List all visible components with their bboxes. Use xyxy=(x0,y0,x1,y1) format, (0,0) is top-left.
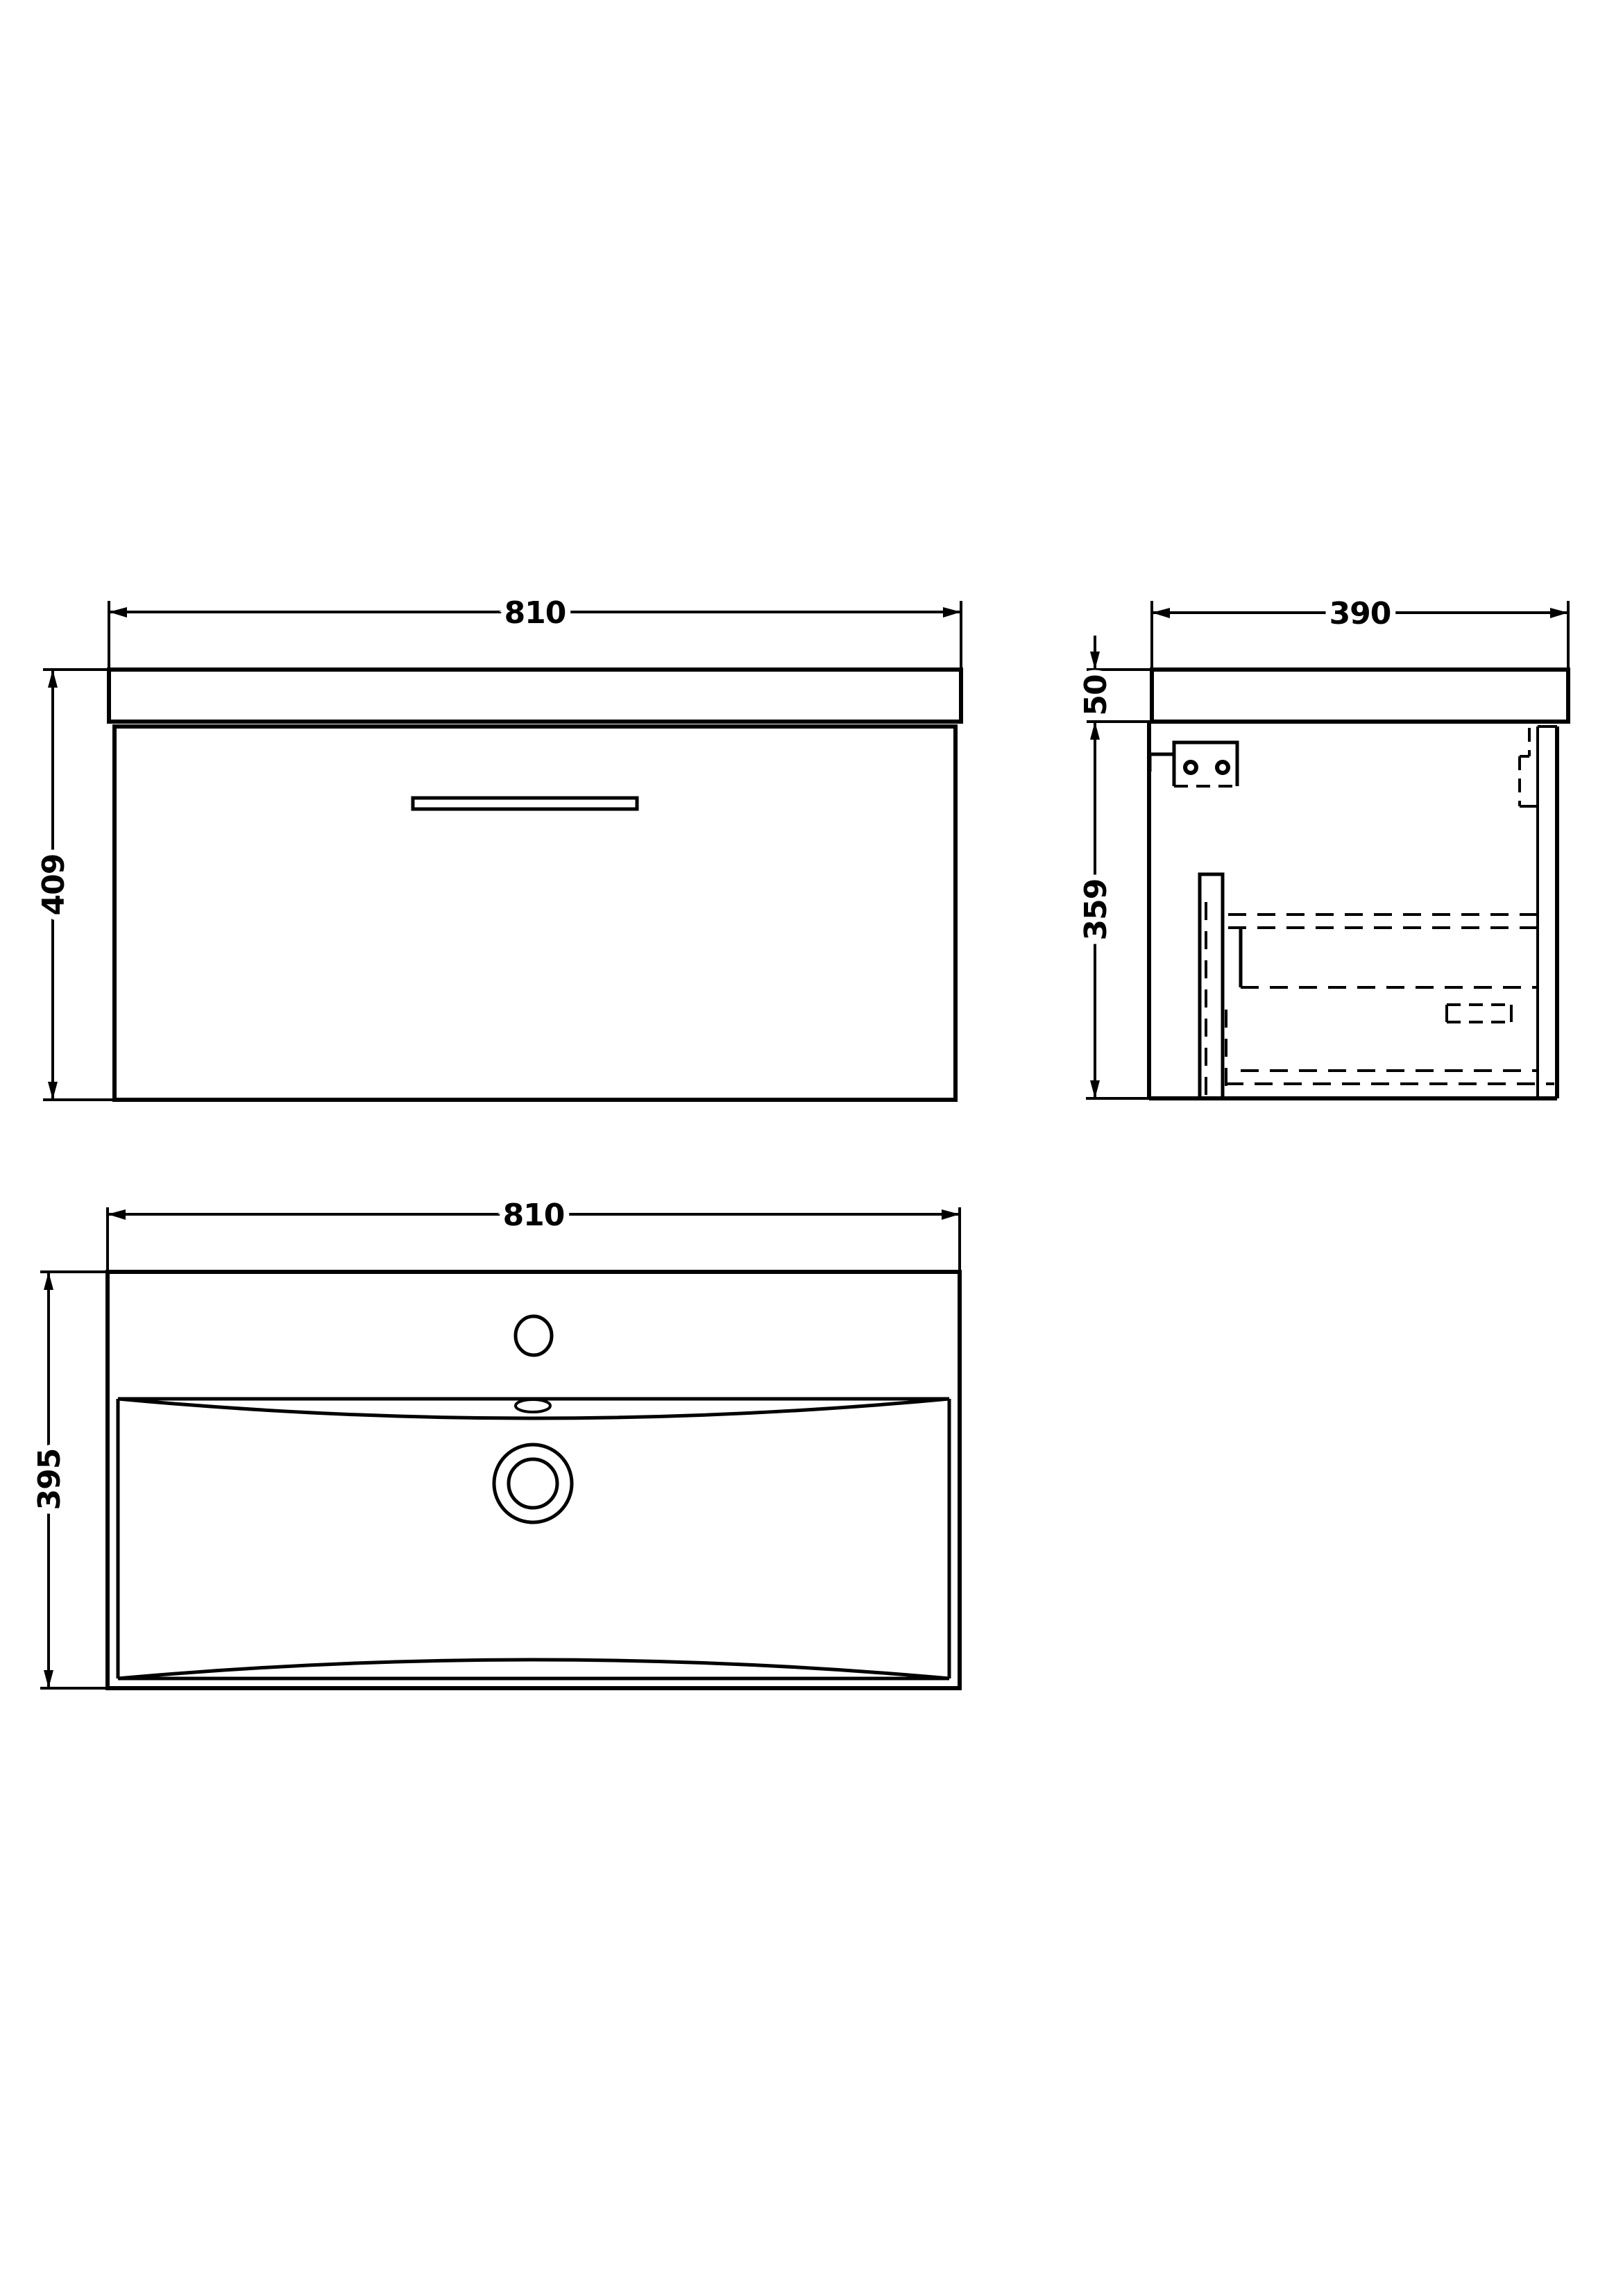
basin-back-slope-curve xyxy=(118,1399,949,1418)
side-rear-post xyxy=(1200,874,1223,1098)
front-height-arrow-top xyxy=(48,670,58,688)
plan-depth-label: 395 xyxy=(32,1449,67,1511)
plan-width-label: 810 xyxy=(503,1198,565,1233)
side-worktop-arrow xyxy=(1090,652,1100,670)
side-carcass-arrow-top xyxy=(1090,722,1100,740)
side-view: 390 50 359 xyxy=(1078,596,1568,1098)
front-width-label: 810 xyxy=(504,595,566,631)
tap-hole xyxy=(516,1316,552,1355)
front-drawer-handle xyxy=(413,798,637,809)
side-carcass-arrow-bottom xyxy=(1090,1080,1100,1098)
side-bracket-hook xyxy=(1150,754,1174,772)
side-worktop-outline xyxy=(1152,670,1568,722)
side-carcass-label: 359 xyxy=(1078,879,1114,941)
drawing-sheet: 810 409 390 50 359 xyxy=(0,0,1623,2296)
plan-depth-arrow-bottom xyxy=(44,1670,53,1688)
overflow-slot xyxy=(516,1400,550,1412)
front-height-arrow-bottom xyxy=(48,1082,58,1100)
waste-hole-inner xyxy=(509,1459,557,1508)
front-view: 810 409 xyxy=(36,595,961,1100)
front-worktop-outline xyxy=(109,670,961,722)
basin-outer-rim xyxy=(108,1272,960,1688)
plan-depth-arrow-top xyxy=(44,1272,53,1290)
plan-width-arrow-left xyxy=(108,1209,126,1220)
front-width-arrow-right xyxy=(943,607,961,618)
side-worktop-label: 50 xyxy=(1078,674,1114,715)
front-cabinet-outline xyxy=(114,726,955,1100)
bracket-screw-icon xyxy=(1217,762,1228,773)
technical-drawing: 810 409 390 50 359 xyxy=(0,0,1623,2296)
front-width-arrow-left xyxy=(109,607,127,618)
side-depth-arrow-left xyxy=(1152,608,1170,618)
plan-view: 810 395 xyxy=(32,1198,960,1688)
plan-width-arrow-right xyxy=(942,1209,960,1220)
basin-front-slope-curve xyxy=(118,1660,949,1678)
bracket-screw-icon xyxy=(1185,762,1196,773)
side-depth-label: 390 xyxy=(1329,596,1391,631)
front-height-label: 409 xyxy=(36,854,71,916)
side-depth-arrow-right xyxy=(1550,608,1568,618)
waste-hole-outer xyxy=(494,1445,572,1522)
